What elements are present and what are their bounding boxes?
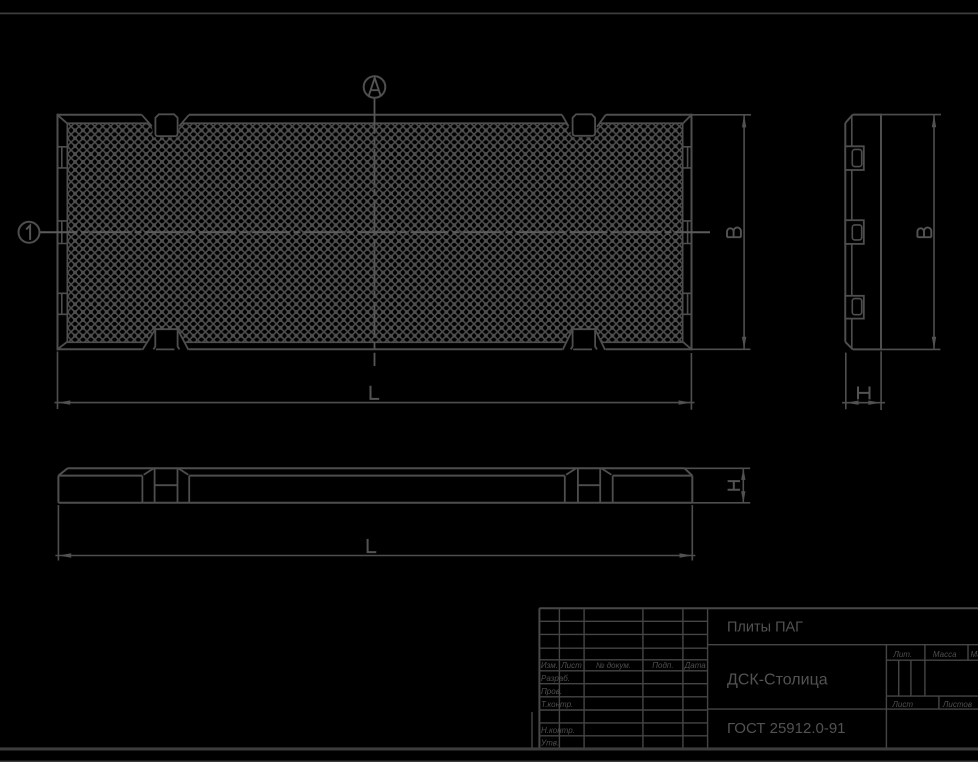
svg-text:Плиты ПАГ: Плиты ПАГ xyxy=(727,620,803,636)
svg-text:Лист: Лист xyxy=(891,700,913,709)
svg-text:№ докум.: № докум. xyxy=(596,661,631,670)
svg-text:Разраб.: Разраб. xyxy=(541,674,570,683)
svg-text:Масса: Масса xyxy=(933,650,957,659)
svg-text:Н.контр.: Н.контр. xyxy=(541,726,575,735)
svg-text:Масштаб: Масштаб xyxy=(971,650,978,659)
svg-text:Утв.: Утв. xyxy=(540,739,559,748)
svg-text:Изм.: Изм. xyxy=(541,661,558,670)
svg-text:Подп.: Подп. xyxy=(652,661,673,670)
svg-text:Пров.: Пров. xyxy=(541,687,562,696)
svg-text:Дата: Дата xyxy=(684,661,707,670)
svg-text:Листов: Листов xyxy=(942,700,972,709)
svg-text:Т.контр.: Т.контр. xyxy=(541,700,573,709)
svg-text:ГОСТ 25912.0-91: ГОСТ 25912.0-91 xyxy=(727,720,846,737)
svg-text:ДСК-Столица: ДСК-Столица xyxy=(727,672,828,689)
svg-text:Лист: Лист xyxy=(560,661,582,670)
svg-text:Лит.: Лит. xyxy=(892,650,912,659)
